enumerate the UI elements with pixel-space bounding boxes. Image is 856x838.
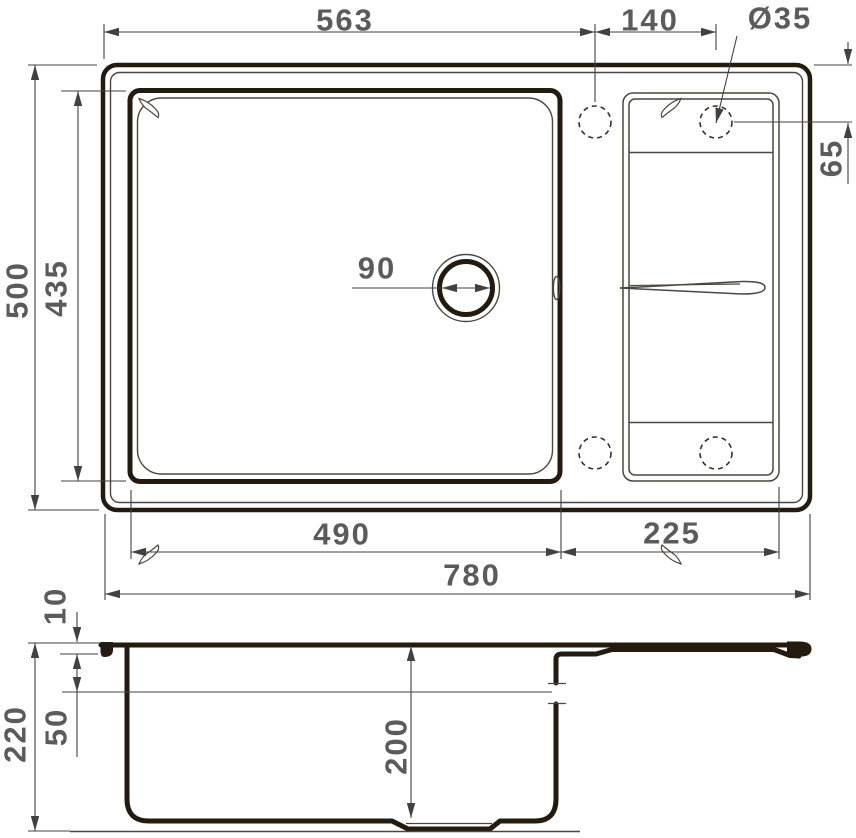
label-780: 780 [443, 558, 501, 593]
label-200: 200 [379, 717, 414, 775]
label-65: 65 [814, 139, 849, 177]
label-220: 220 [0, 705, 33, 763]
section-overflow-break [548, 684, 566, 704]
label-225: 225 [643, 516, 701, 551]
section-right-rim-tip [787, 642, 812, 657]
label-435: 435 [39, 259, 74, 317]
drawing-canvas: 563 140 Ø35 65 500 435 90 490 225 780 10… [0, 0, 856, 838]
main-bowl-outline [130, 91, 560, 482]
label-563: 563 [316, 3, 374, 38]
label-50: 50 [39, 708, 74, 746]
ext-10 [28, 643, 100, 654]
label-500: 500 [0, 261, 35, 319]
section-left-rim-lip [101, 642, 114, 657]
label-tap-diameter: Ø35 [748, 1, 813, 36]
section-bowl-profile [127, 647, 799, 829]
label-140: 140 [621, 3, 679, 38]
label-490: 490 [313, 517, 371, 552]
label-10: 10 [38, 587, 73, 625]
top-view [103, 65, 810, 564]
sink-technical-drawing: 563 140 Ø35 65 500 435 90 490 225 780 10… [0, 0, 856, 838]
label-drain-diameter: 90 [358, 251, 396, 286]
side-view [70, 642, 812, 832]
